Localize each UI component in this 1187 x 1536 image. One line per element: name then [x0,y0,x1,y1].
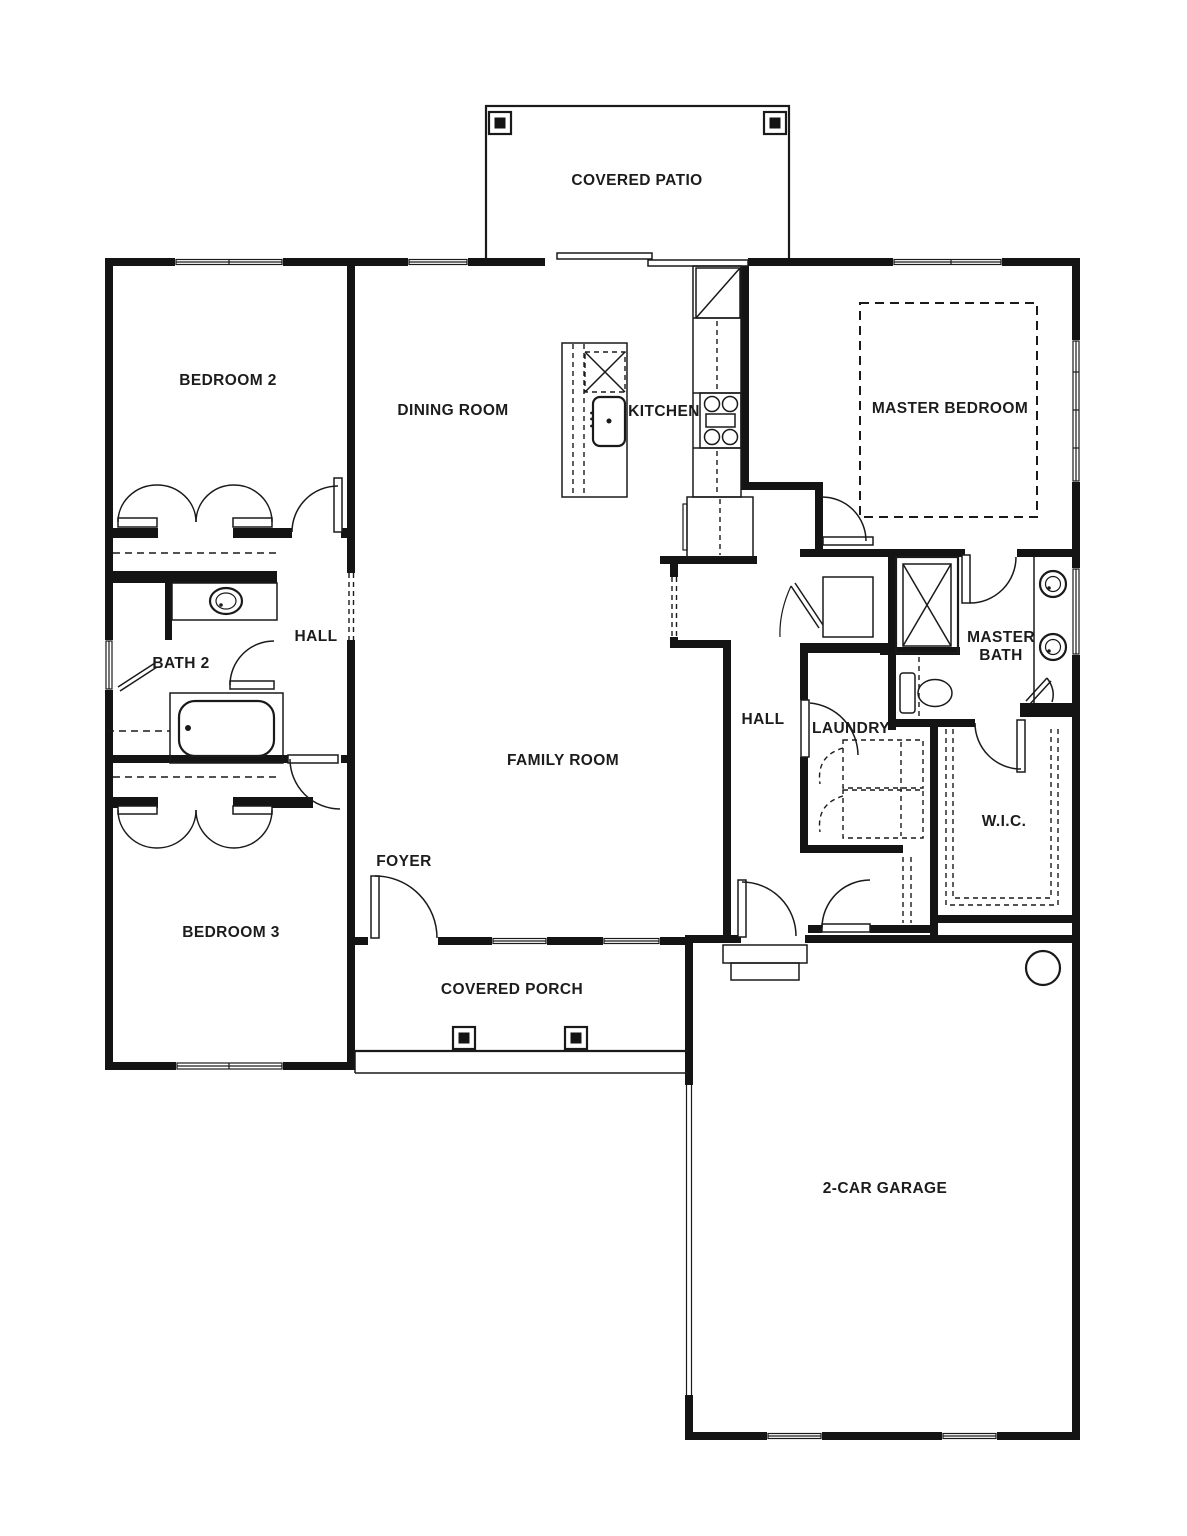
bath2-door [230,641,274,689]
family-room-front-window2 [603,937,660,945]
room-label-dining-room: DINING ROOM [397,402,508,420]
garage-overhead-door [687,1085,692,1395]
room-label-master-bath: MASTERBATH [967,629,1035,665]
room-label-hall-left: HALL [295,628,338,646]
covered-porch-outline [355,1027,688,1073]
room-label-bath2: BATH 2 [152,655,209,673]
dining-window [408,258,468,266]
master-bedroom-side-windows [1072,340,1080,482]
room-label-bedroom2: BEDROOM 2 [179,372,276,390]
room-label-wic: W.I.C. [982,813,1027,831]
room-label-family-room: FAMILY ROOM [507,752,619,770]
bath2-window [105,640,113,690]
master-bath-door [962,555,1016,603]
bedroom2-closet [113,485,277,553]
bedroom2-window [175,258,283,266]
hall-coat-closet [823,577,873,637]
master-bath-line1: MASTER [967,629,1035,646]
room-label-laundry: LAUNDRY [812,720,890,738]
bath2-linen-door [118,663,157,691]
room-label-kitchen: KITCHEN [628,403,700,421]
garage-window [767,1432,822,1440]
garage-step [723,945,807,963]
vanity-linen-door [1026,678,1053,704]
pantry-cabinet [683,497,753,557]
bath-fixtures [107,557,1066,838]
room-label-covered-patio: COVERED PATIO [571,172,702,190]
master-bedroom-door [822,497,873,545]
room-label-bedroom3: BEDROOM 3 [182,924,279,942]
wic-door [975,720,1025,772]
garage-fixtures [723,945,1060,985]
master-bath-line2: BATH [979,647,1023,664]
bath2-vanity [172,583,277,620]
hall-cased-opening [347,573,355,640]
garage-entry-door [738,880,796,937]
master-bath-window [1072,568,1080,655]
refrigerator [696,268,740,318]
bathtub [107,693,283,763]
kitchen-island [562,343,627,497]
island-sink [590,397,625,446]
shower [896,557,958,653]
hall-storage-shelves [903,857,911,923]
island-dishwasher [585,352,625,392]
range-cooktop [700,393,741,448]
doors [118,478,1053,938]
toilet [900,657,952,717]
hall-closet-door [822,880,870,932]
room-label-master-bedroom: MASTER BEDROOM [872,400,1028,418]
family-room-front-window [492,937,547,945]
master-bedroom-top-window [893,258,1002,266]
water-heater [1026,951,1060,985]
room-label-covered-porch: COVERED PORCH [441,981,583,999]
kitchen-cased-opening [670,577,678,637]
garage-step2 [731,963,799,980]
room-label-hall-right: HALL [742,711,785,729]
bedroom2-door [292,478,342,532]
hall-coat-closet-door [780,583,823,637]
floorplan-page: COVERED PATIO BEDROOM 2 DINING ROOM KITC… [0,0,1187,1536]
washer-dryer [819,740,923,838]
room-label-foyer: FOYER [376,853,431,871]
patio-sliding-door [545,253,748,266]
garage-window2 [942,1432,997,1440]
bedroom3-closet [113,777,277,848]
front-door [371,876,437,938]
bedroom3-window [176,1062,283,1070]
room-label-garage: 2-CAR GARAGE [823,1180,948,1198]
